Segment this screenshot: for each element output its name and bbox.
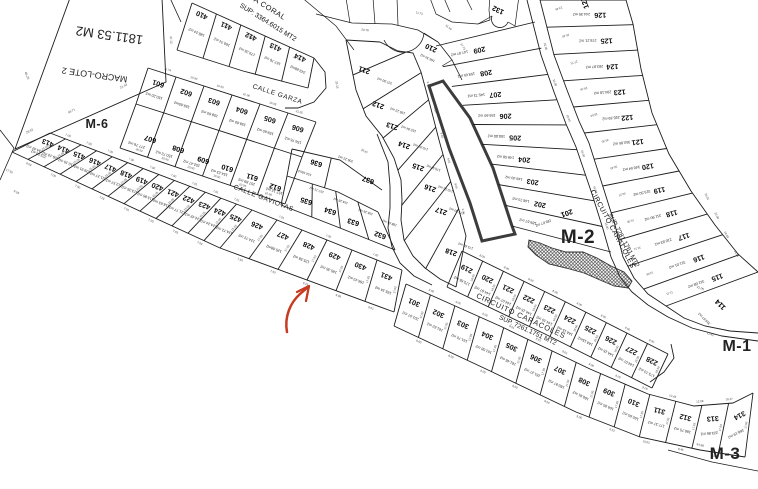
svg-text:121: 121 bbox=[631, 137, 644, 147]
svg-text:12.08: 12.08 bbox=[696, 399, 704, 404]
svg-text:124: 124 bbox=[606, 62, 619, 72]
svg-text:206: 206 bbox=[499, 112, 511, 121]
svg-text:207: 207 bbox=[489, 90, 502, 100]
svg-text:203: 203 bbox=[526, 177, 539, 188]
svg-text:155.60 m2: 155.60 m2 bbox=[478, 113, 496, 117]
svg-text:M-6: M-6 bbox=[85, 117, 108, 131]
svg-text:126: 126 bbox=[594, 11, 606, 20]
svg-text:205: 205 bbox=[509, 133, 521, 142]
svg-text:M-1: M-1 bbox=[722, 338, 751, 355]
svg-text:313: 313 bbox=[706, 414, 719, 424]
svg-text:244.36 m2: 244.36 m2 bbox=[573, 12, 590, 16]
svg-text:125: 125 bbox=[600, 36, 612, 45]
svg-text:16.27: 16.27 bbox=[725, 397, 733, 402]
svg-text:150.00 m2: 150.00 m2 bbox=[488, 134, 506, 139]
svg-text:208: 208 bbox=[479, 68, 492, 79]
svg-text:204: 204 bbox=[518, 155, 531, 165]
svg-text:M-3: M-3 bbox=[710, 444, 741, 463]
svg-text:123: 123 bbox=[613, 87, 626, 97]
svg-text:20.78: 20.78 bbox=[361, 28, 369, 33]
svg-text:122: 122 bbox=[621, 113, 634, 123]
svg-text:M-2: M-2 bbox=[561, 227, 595, 248]
svg-text:37.72: 37.72 bbox=[169, 36, 174, 44]
svg-text:278.21 m2: 278.21 m2 bbox=[579, 38, 597, 43]
